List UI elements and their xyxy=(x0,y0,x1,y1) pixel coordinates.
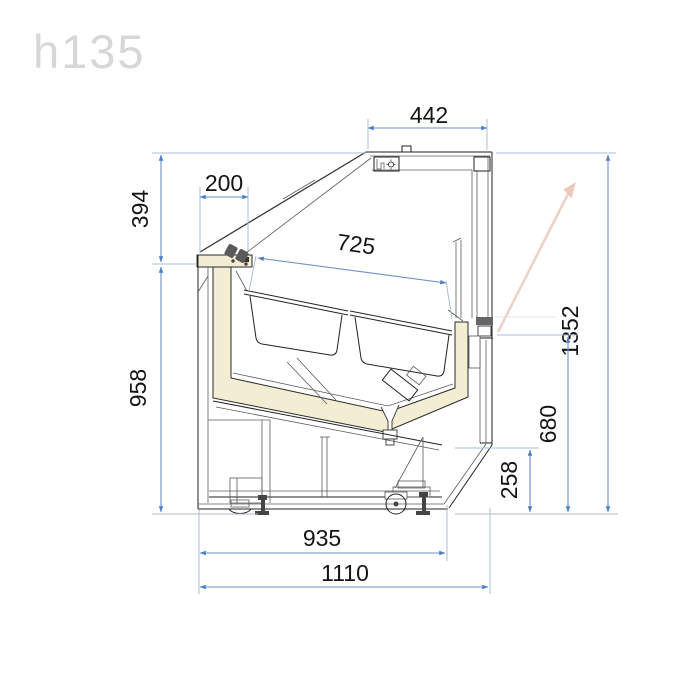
display-pan-1 xyxy=(244,290,348,355)
dim-label-258: 258 xyxy=(496,461,522,499)
leveling-foot-rear xyxy=(416,492,430,515)
dim-label-958: 958 xyxy=(125,369,151,407)
dim-label-200: 200 xyxy=(205,170,243,196)
dim-label-1110: 1110 xyxy=(321,560,369,586)
leveling-foot-front xyxy=(255,495,269,515)
dimension-body-height: 958 xyxy=(125,267,161,512)
caster-rear xyxy=(385,492,407,514)
rear-ledge-lock xyxy=(476,317,493,338)
display-pan-2 xyxy=(350,311,452,376)
fan-unit xyxy=(382,366,426,401)
dim-label-935: 935 xyxy=(303,525,341,551)
dimension-glass-height: 394 xyxy=(127,153,366,264)
technical-drawing-page: h135 xyxy=(0,0,700,700)
dimension-total-height: 1352 xyxy=(496,153,616,512)
lamp-icon xyxy=(387,160,396,170)
dim-label-442: 442 xyxy=(410,102,448,128)
dimension-deck-length: 725 xyxy=(249,229,452,319)
dimension-front-overhang: 200 xyxy=(200,170,248,253)
dimension-canopy-depth: 442 xyxy=(368,102,487,150)
dim-label-725: 725 xyxy=(335,229,377,260)
caster-front xyxy=(229,500,251,514)
display-case-diagram: 442 200 394 958 725 xyxy=(0,0,700,700)
dim-label-1352: 1352 xyxy=(557,305,583,356)
display-case-drawing xyxy=(197,146,576,515)
top-canopy xyxy=(366,146,492,171)
dim-label-680: 680 xyxy=(535,405,561,443)
dim-label-394: 394 xyxy=(127,190,153,229)
